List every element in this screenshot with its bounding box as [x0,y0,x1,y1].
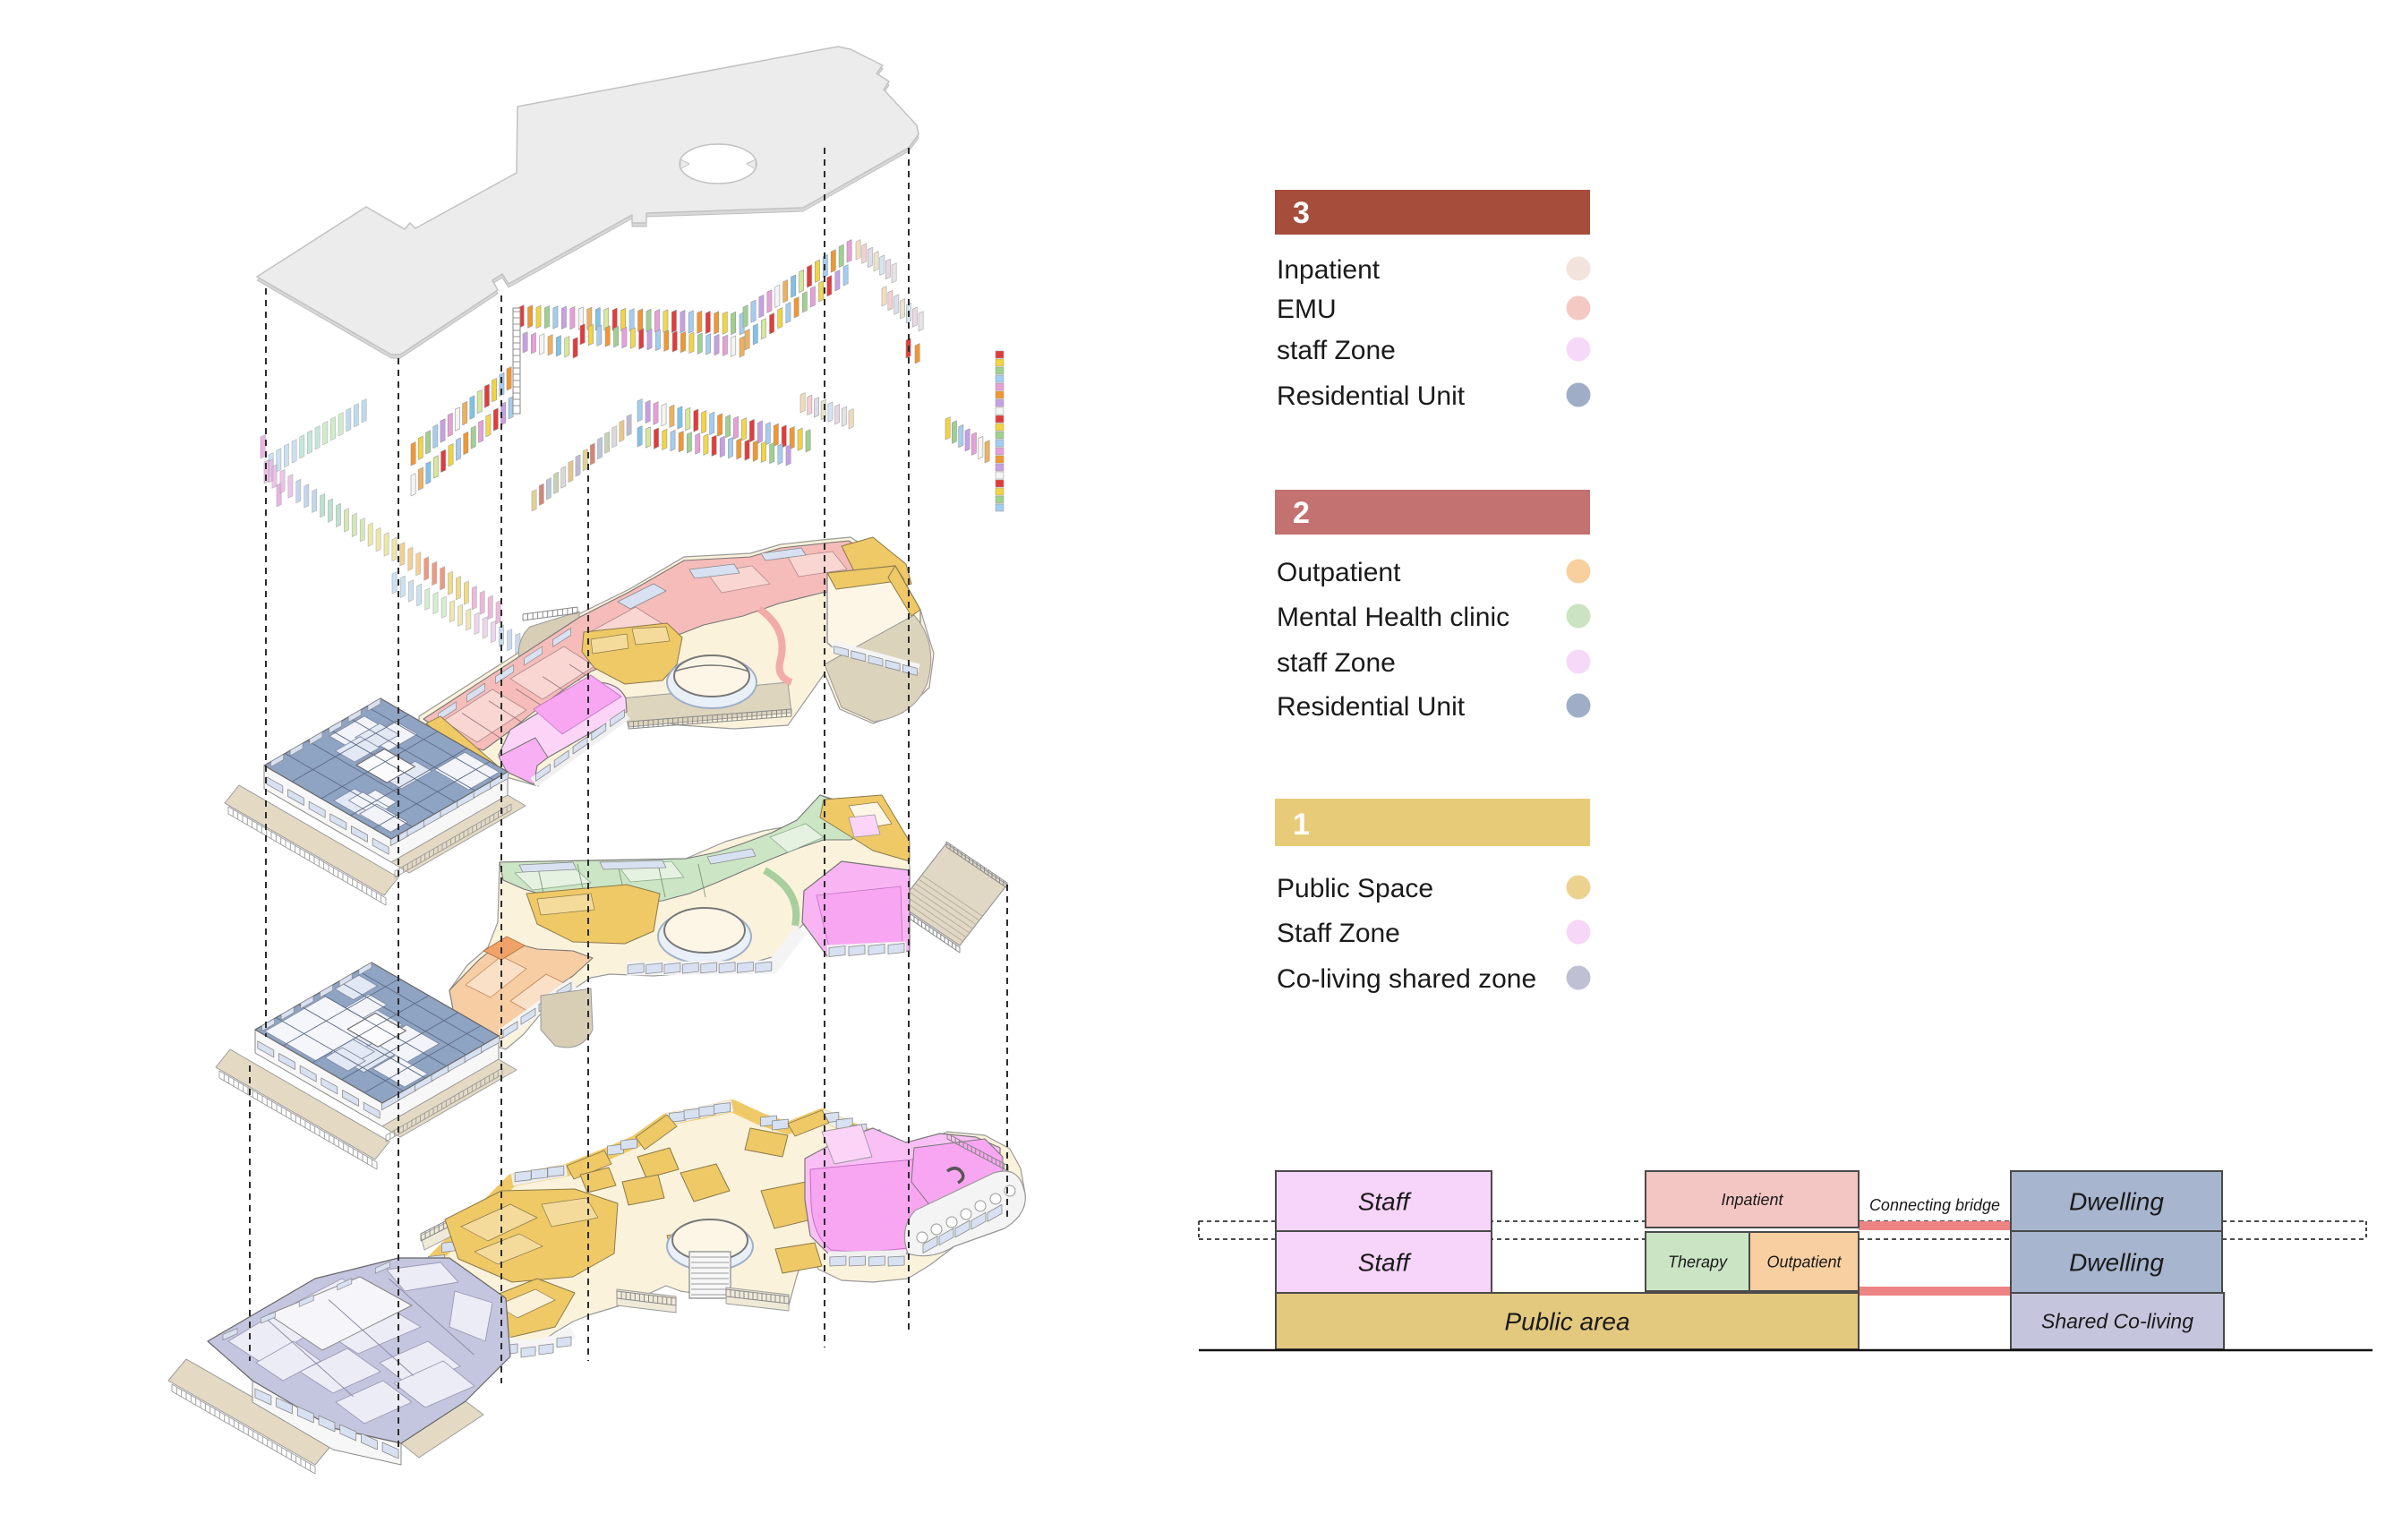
svg-text:Dwelling: Dwelling [2069,1187,2164,1215]
svg-text:Staff Zone: Staff Zone [1277,919,1400,948]
svg-text:Co-living shared zone: Co-living shared zone [1277,964,1536,994]
svg-text:Mental Health clinic: Mental Health clinic [1277,603,1509,632]
svg-text:EMU: EMU [1277,295,1337,324]
svg-text:Inpatient: Inpatient [1277,255,1381,285]
svg-text:Dwelling: Dwelling [2069,1248,2164,1276]
svg-text:Public Space: Public Space [1277,874,1433,903]
svg-text:staff Zone: staff Zone [1277,336,1396,365]
svg-text:Staff: Staff [1358,1187,1413,1215]
svg-text:staff Zone: staff Zone [1277,648,1396,678]
svg-text:Residential Unit: Residential Unit [1277,692,1466,722]
svg-text:Outpatient: Outpatient [1277,558,1401,587]
svg-text:Therapy: Therapy [1668,1253,1728,1270]
svg-text:Outpatient: Outpatient [1766,1253,1842,1270]
svg-text:Public area: Public area [1504,1307,1629,1335]
svg-text:Staff: Staff [1358,1248,1413,1276]
svg-text:Residential Unit: Residential Unit [1277,381,1466,411]
svg-text:3: 3 [1293,196,1310,230]
svg-text:1: 1 [1293,808,1310,842]
svg-text:Shared Co-living: Shared Co-living [2041,1310,2193,1333]
svg-text:Connecting bridge: Connecting bridge [1869,1196,2000,1214]
svg-text:Inpatient: Inpatient [1721,1191,1783,1209]
svg-text:2: 2 [1293,496,1310,530]
